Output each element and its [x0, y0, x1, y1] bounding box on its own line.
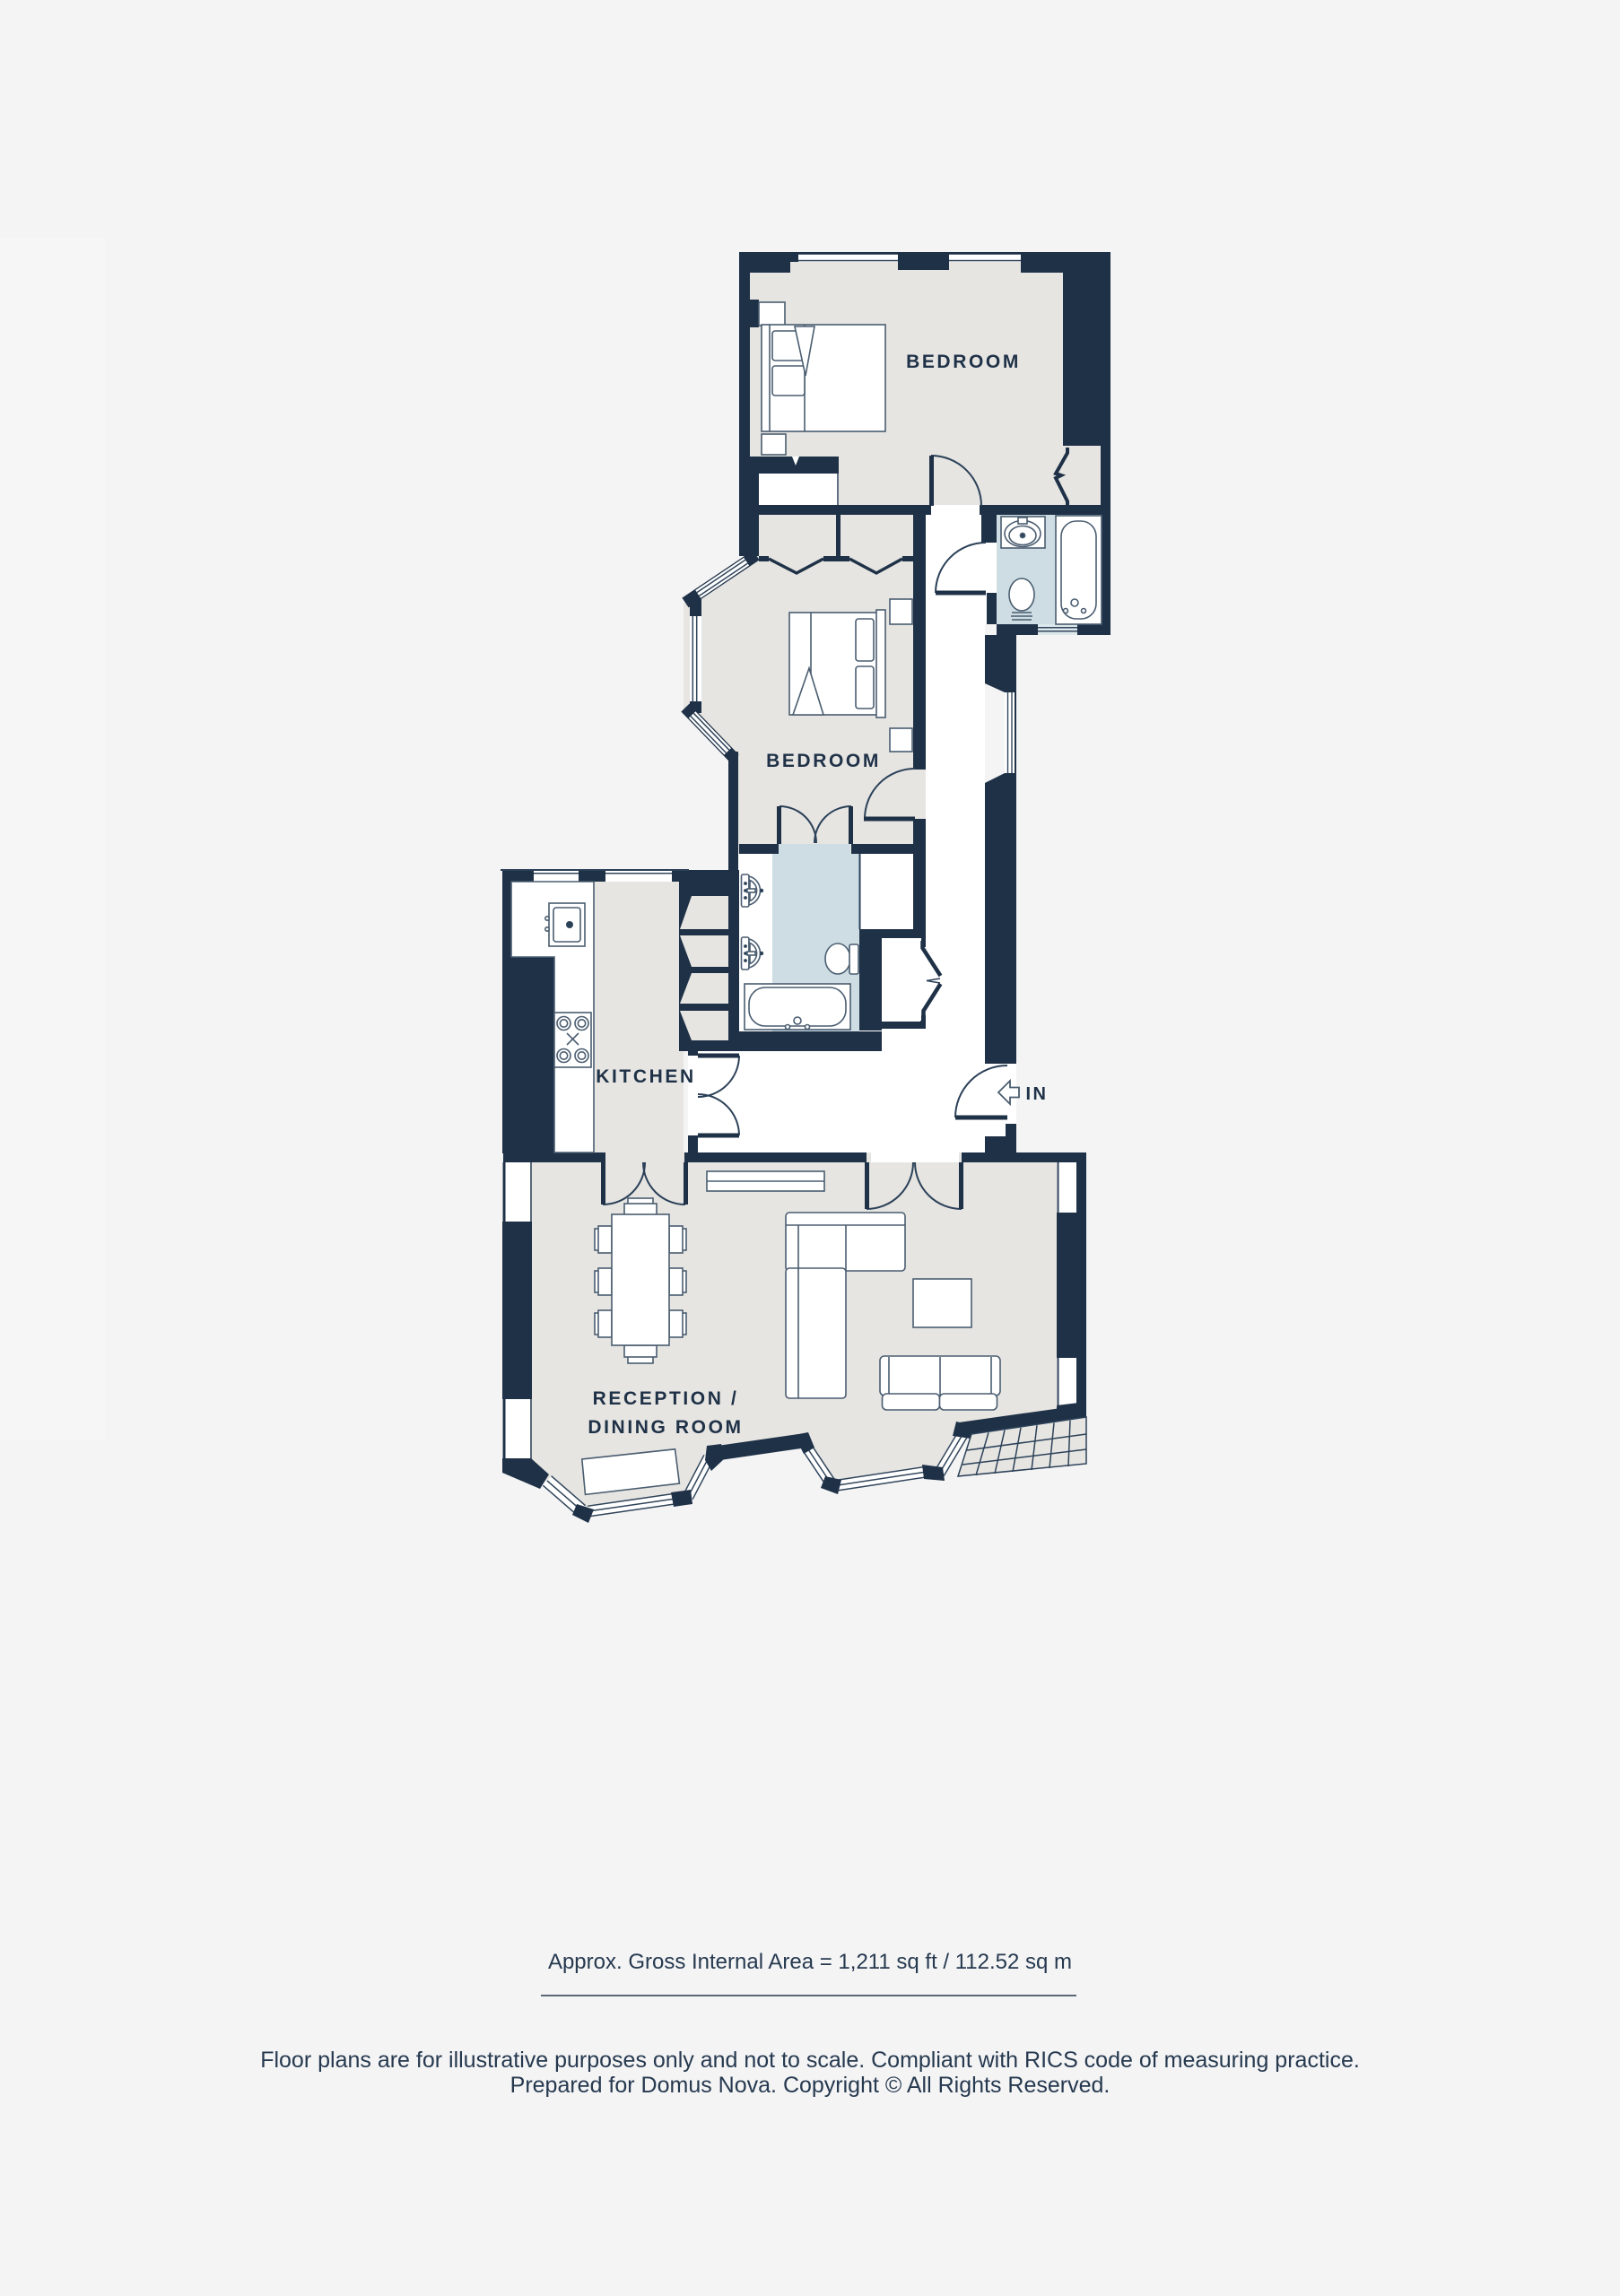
- svg-text:BEDROOM: BEDROOM: [766, 751, 881, 771]
- svg-text:BEDROOM: BEDROOM: [906, 352, 1021, 372]
- svg-text:Approx. Gross Internal Area =: Approx. Gross Internal Area = 1,211 sq f…: [548, 1950, 1072, 1974]
- svg-text:RECEPTION /: RECEPTION /: [593, 1388, 739, 1409]
- svg-text:DINING ROOM: DINING ROOM: [588, 1417, 743, 1438]
- svg-text:Floor plans are for illustrati: Floor plans are for illustrative purpose…: [260, 2048, 1360, 2073]
- svg-text:Prepared for Domus Nova. Copyr: Prepared for Domus Nova. Copyright © All…: [510, 2073, 1110, 2098]
- svg-text:IN: IN: [1026, 1084, 1049, 1104]
- svg-text:KITCHEN: KITCHEN: [596, 1066, 696, 1087]
